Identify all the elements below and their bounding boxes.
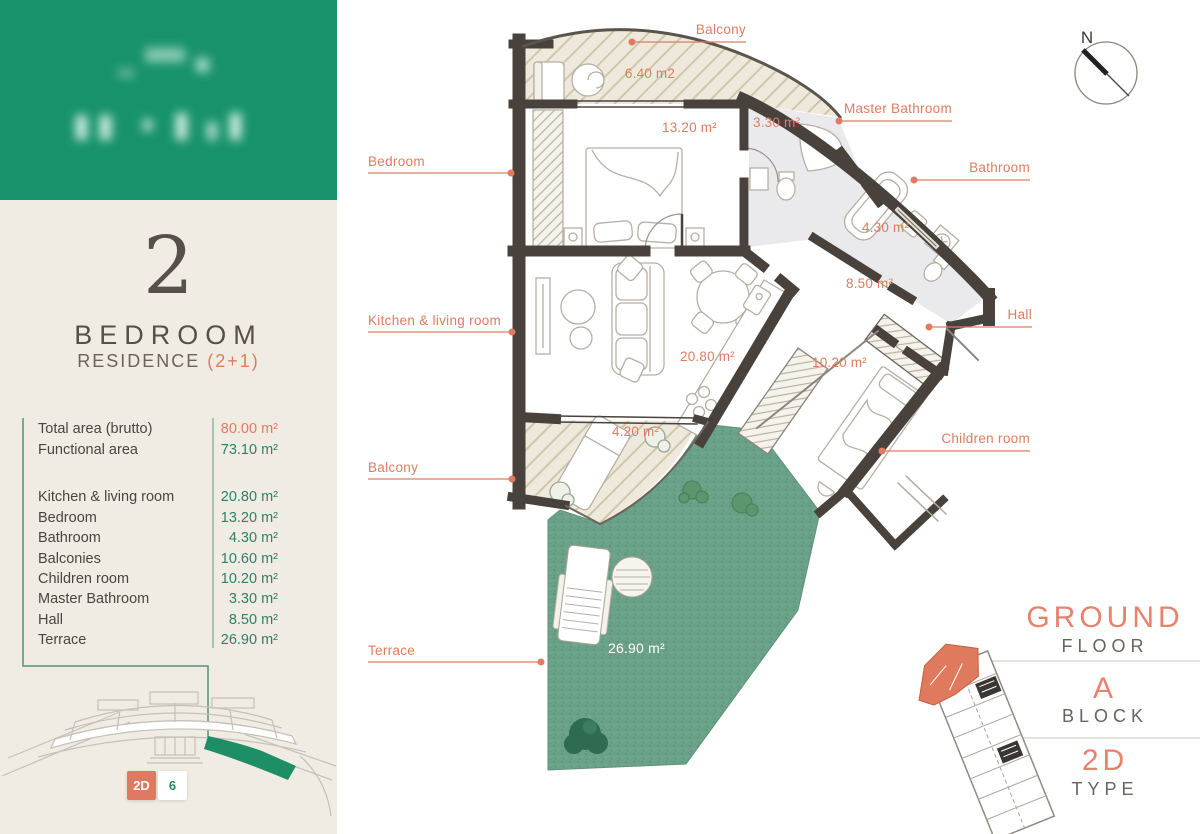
bedroom-bed xyxy=(586,148,682,248)
children-bed xyxy=(817,366,927,490)
compass-icon xyxy=(1075,42,1137,104)
area-bedroom: 13.20 m² xyxy=(662,120,717,135)
terrace-area xyxy=(548,424,820,770)
area-master-bathroom: 3.30 m² xyxy=(753,115,800,130)
area-row: Balconies 10.60 m² xyxy=(38,551,278,571)
highlighted-unit xyxy=(903,634,991,710)
label-balcony-low: Balcony xyxy=(368,460,418,475)
label-children-room: Children room xyxy=(882,431,1030,446)
terrace-table xyxy=(612,557,652,597)
block-plan xyxy=(903,631,1054,834)
row-label: Terrace xyxy=(38,632,86,652)
door-arcs xyxy=(645,148,908,352)
sofa-pillow xyxy=(619,357,646,384)
row-label: Hall xyxy=(38,612,63,632)
bath-toilet xyxy=(933,254,949,269)
dining-table xyxy=(697,271,749,323)
row-value: 10.60 m² xyxy=(221,551,278,571)
area-bathroom: 4.30 m² xyxy=(862,220,909,235)
unit-subtype: RESIDENCE (2+1) xyxy=(0,351,337,372)
unit-number: 2 xyxy=(0,222,337,310)
washing-machine xyxy=(925,225,959,259)
area-terrace: 26.90 m² xyxy=(608,640,665,656)
unit-count-badge: 6 xyxy=(158,771,187,800)
type-label: TYPE xyxy=(1005,779,1200,800)
mb-sink xyxy=(750,168,768,190)
type-value: 2D xyxy=(1005,744,1200,778)
tree xyxy=(564,718,608,754)
area-row: Terrace 26.90 m² xyxy=(38,632,278,652)
type-badge: 2D xyxy=(127,771,156,800)
floor-label: FLOOR xyxy=(1005,636,1200,657)
row-label: Balconies xyxy=(38,551,101,571)
compass-north-label: N xyxy=(1072,28,1102,48)
unit-type: BEDROOM xyxy=(0,320,337,351)
sofa-pillow xyxy=(616,254,644,282)
kitchen-sink xyxy=(742,284,771,316)
shower xyxy=(800,124,843,171)
row-value: 26.90 m² xyxy=(221,632,278,652)
label-bedroom: Bedroom xyxy=(368,154,425,169)
bedroom-wardrobe xyxy=(533,110,563,247)
nightstand xyxy=(686,228,704,247)
area-kitchen-living: 20.80 m² xyxy=(680,349,735,364)
row-value: 13.20 m² xyxy=(221,510,278,530)
terrace-bushes xyxy=(679,481,758,516)
mb-toilet xyxy=(779,172,794,180)
children-sink xyxy=(814,482,834,500)
row-label: Bedroom xyxy=(38,510,97,530)
residence-text: RESIDENCE xyxy=(77,351,207,371)
area-row: Children room 10.20 m² xyxy=(38,571,278,591)
area-row: Kitchen & living room 20.80 m² xyxy=(38,489,278,509)
floorplan-brochure-page: { "colors": { "brand_green": "#18926b", … xyxy=(0,0,1200,834)
area-row: Master Bathroom 3.30 m² xyxy=(38,591,278,611)
label-bathroom: Bathroom xyxy=(917,160,1030,175)
area-balcony-low: 4.20 m² xyxy=(612,424,659,439)
balcony-armchair xyxy=(534,62,564,102)
label-kitchen-living: Kitchen & living room xyxy=(368,313,501,328)
floor-value: GROUND xyxy=(1005,601,1200,635)
area-row: Bathroom 4.30 m² xyxy=(38,530,278,550)
row-label: Kitchen & living room xyxy=(38,489,174,509)
bathroom-floor xyxy=(818,158,986,324)
area-hall: 8.50 m² xyxy=(846,276,893,291)
label-balcony-top: Balcony xyxy=(648,22,746,37)
sidebar: 2 BEDROOM RESIDENCE (2+1) Total area (br… xyxy=(0,0,337,834)
area-row-total: Total area (brutto) 80.00 m² xyxy=(38,421,278,441)
sun-lounger xyxy=(557,545,610,645)
row-value: 3.30 m² xyxy=(229,591,278,611)
area-row: Bedroom 13.20 m² xyxy=(38,510,278,530)
coffee-table-small xyxy=(570,327,592,349)
coffee-table xyxy=(561,290,595,324)
nightstand xyxy=(564,228,582,247)
dining-chairs xyxy=(689,260,759,335)
sofa xyxy=(612,263,664,375)
shelf xyxy=(536,278,550,354)
row-value: 4.30 m² xyxy=(229,530,278,550)
row-label: Total area (brutto) xyxy=(38,421,152,441)
block-value: A xyxy=(1005,672,1200,706)
row-value: 20.80 m² xyxy=(221,489,278,509)
row-label: Bathroom xyxy=(38,530,101,550)
block-label: BLOCK xyxy=(1005,706,1200,727)
row-value: 73.10 m² xyxy=(221,442,278,462)
hall-wardrobe xyxy=(865,314,945,385)
label-hall: Hall xyxy=(929,307,1032,322)
row-label: Functional area xyxy=(38,442,138,462)
residence-suffix: (2+1) xyxy=(207,351,260,371)
label-master-bathroom: Master Bathroom xyxy=(839,101,952,116)
brand-logo xyxy=(0,0,337,200)
row-value: 80.00 m² xyxy=(221,421,278,441)
row-value: 10.20 m² xyxy=(221,571,278,591)
row-value: 8.50 m² xyxy=(229,612,278,632)
balcony-table xyxy=(572,64,604,96)
pillow xyxy=(593,220,633,242)
terrace-furniture xyxy=(551,481,758,754)
area-row: Hall 8.50 m² xyxy=(38,612,278,632)
stove-burner xyxy=(687,394,698,405)
pillow xyxy=(637,222,676,244)
area-balcony-top: 6.40 m2 xyxy=(605,66,695,81)
stair-core xyxy=(975,676,1001,699)
area-children-room: 10.20 m² xyxy=(812,355,867,370)
row-label: Master Bathroom xyxy=(38,591,149,611)
label-terrace: Terrace xyxy=(368,643,415,658)
row-label: Children room xyxy=(38,571,129,591)
area-row-functional: Functional area 73.10 m² xyxy=(38,442,278,462)
